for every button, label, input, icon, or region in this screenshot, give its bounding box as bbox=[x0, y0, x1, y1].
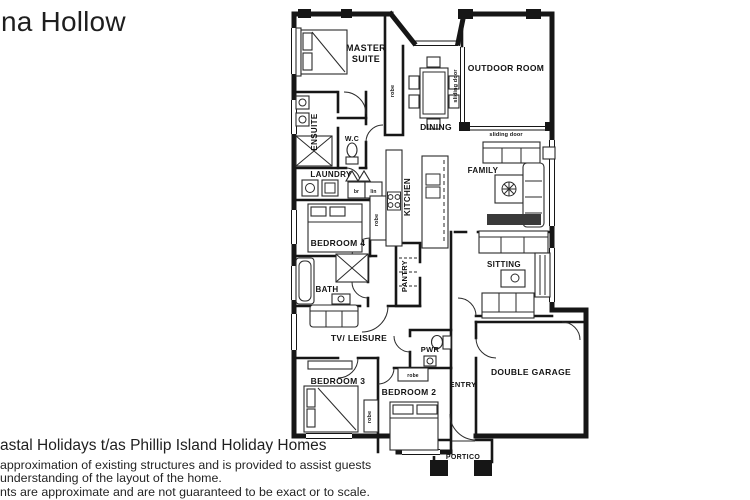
tv-unit-icon bbox=[487, 214, 541, 225]
room-label-ensuite: ENSUITE bbox=[310, 113, 319, 150]
family-furniture bbox=[483, 142, 555, 227]
footer-company: astal Holidays t/as Phillip Island Holid… bbox=[0, 437, 327, 455]
bed-icon-bedroom3 bbox=[304, 361, 358, 432]
room-label-bath: BATH bbox=[315, 285, 338, 294]
room-label-garage: DOUBLE GARAGE bbox=[491, 367, 571, 377]
footer-disclaimer-1: approximation of existing structures and… bbox=[0, 458, 371, 472]
sliding-door-label-vertical: sliding door bbox=[453, 69, 459, 103]
robe-label-bedroom4: robe bbox=[374, 214, 380, 227]
bath-fixtures bbox=[296, 254, 368, 304]
scanned-floorplan-page: { "title": "na Hollow", "footer": { "com… bbox=[0, 0, 750, 500]
room-label-master-2: SUITE bbox=[352, 54, 380, 64]
footer-disclaimer-2: understanding of the layout of the home. bbox=[0, 471, 222, 485]
room-label-portico: PORTICO bbox=[446, 454, 481, 461]
bed-icon-bedroom2 bbox=[390, 368, 438, 450]
room-label-dining: DINING bbox=[420, 122, 452, 132]
kitchen-island bbox=[422, 156, 448, 248]
room-label-bedroom2: BEDROOM 2 bbox=[382, 387, 437, 397]
lin-label: lin bbox=[370, 189, 376, 195]
room-label-pantry: PANTRY bbox=[400, 260, 409, 292]
robe-label-bedroom3: robe bbox=[367, 411, 373, 424]
sitting-furniture bbox=[479, 231, 550, 318]
room-label-outdoor: OUTDOOR ROOM bbox=[468, 63, 544, 73]
room-label-pwr: PWR bbox=[421, 345, 440, 354]
room-label-bedroom3: BEDROOM 3 bbox=[311, 376, 366, 386]
robe-label-bedroom2: robe bbox=[407, 373, 419, 379]
br-label: br bbox=[354, 189, 359, 195]
room-label-kitchen: KITCHEN bbox=[403, 178, 412, 216]
room-label-tv-leisure: TV/ LEISURE bbox=[331, 333, 387, 343]
room-label-laundry: LAUNDRY bbox=[310, 170, 352, 179]
room-label-entry: ENTRY bbox=[450, 380, 477, 389]
sofa-icon-leisure bbox=[310, 305, 358, 327]
room-label-bedroom4: BEDROOM 4 bbox=[311, 238, 366, 248]
floorplan: MASTER SUITE OUTDOOR ROOM DINING FAMILY … bbox=[0, 0, 750, 500]
bed-icon-master bbox=[296, 28, 347, 76]
kitchen-bench bbox=[386, 150, 402, 246]
robe-label-master: robe bbox=[390, 85, 396, 98]
room-label-wc: W.C bbox=[345, 136, 359, 143]
dining-table-icon bbox=[409, 57, 459, 129]
room-label-family: FAMILY bbox=[468, 166, 499, 175]
footer-disclaimer-3: nts are approximate and are not guarante… bbox=[0, 485, 370, 499]
sliding-door-label-horizontal: sliding door bbox=[489, 132, 523, 138]
room-label-sitting: SITTING bbox=[487, 260, 521, 269]
room-label-master-1: MASTER bbox=[346, 43, 386, 53]
toilet-icon-wc bbox=[346, 143, 358, 164]
